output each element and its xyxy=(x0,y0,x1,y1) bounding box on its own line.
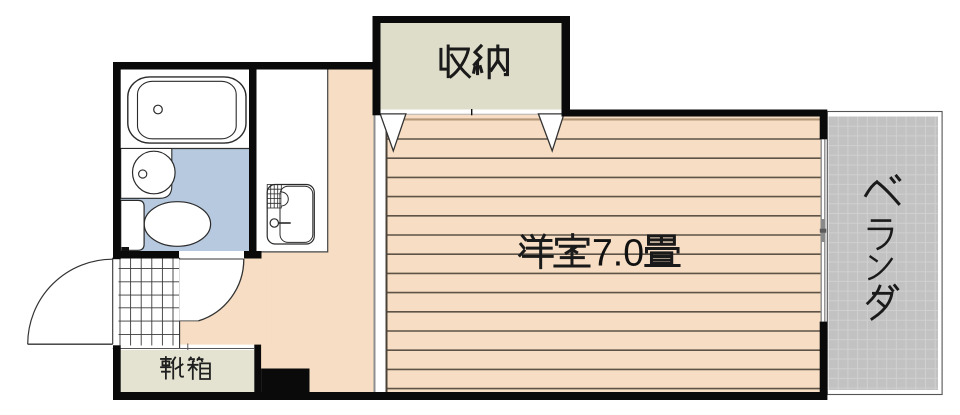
svg-text:7.0: 7.0 xyxy=(592,233,644,275)
